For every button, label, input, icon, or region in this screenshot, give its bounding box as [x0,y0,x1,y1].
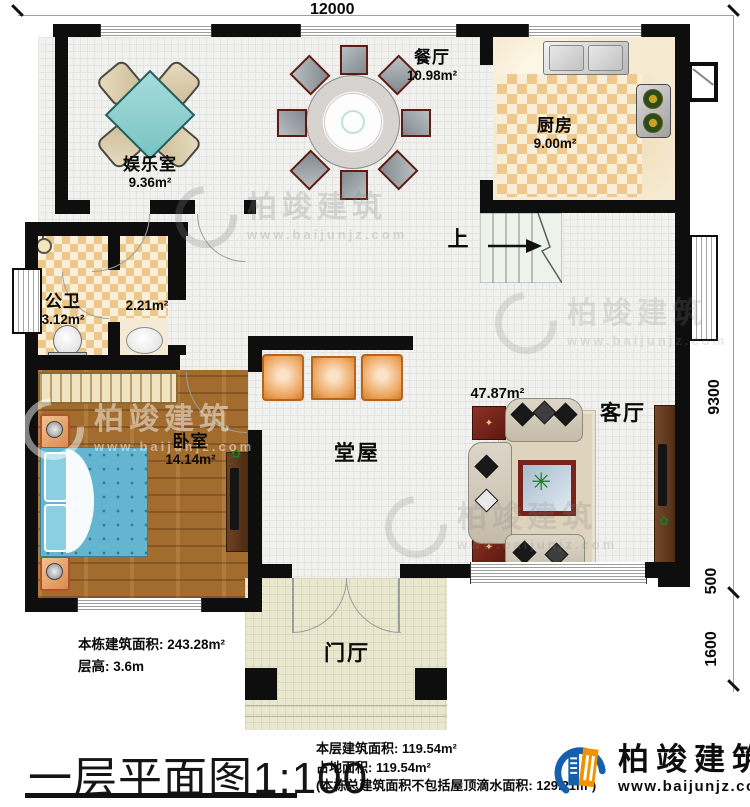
chair [340,170,368,200]
title-underline [25,793,297,798]
pillow [44,452,68,502]
wall [253,564,292,578]
living-area-value: 47.87m² [455,386,540,403]
wardrobe [38,372,178,404]
plant-icon: ✳ [531,468,551,497]
lamp [46,563,63,580]
plant-icon: ✿ [659,514,669,528]
building-area-note: 本栋建筑面积: 243.28m² [78,634,225,656]
room-label-bedroom: 卧室 14.14m² [148,432,233,467]
stairs-up-label: 上 [444,228,474,252]
tv [658,444,667,506]
wall [400,564,470,578]
brand-name: 柏竣建筑 [618,744,750,775]
room-label-bathroom: 公卫 3.12m² [28,292,98,327]
dimension-line-top [18,15,733,16]
pillow [44,504,68,552]
window [470,562,647,584]
dimension-right-lower: 1600 [703,627,721,671]
burner [643,89,663,109]
wall [248,430,262,612]
armchair [361,354,403,401]
shower-head-icon [36,238,52,254]
logo-icon [548,740,610,798]
sink-basin [549,45,584,71]
tv [230,468,239,530]
window [528,24,642,37]
left-notes: 本栋建筑面积: 243.28m² 层高: 3.6m [78,634,225,678]
wall [645,562,690,578]
door-leaf [398,578,400,632]
wall [480,37,493,65]
door-leaf [292,578,294,632]
wall [480,180,493,202]
floor-plan: ✿ ✦ ✦ ✳ ✿ [0,0,750,807]
wall [675,24,690,580]
window [77,598,202,612]
wall [25,355,180,370]
dimension-right-upper: 9300 [706,372,724,422]
lamp [46,421,63,438]
room-label-kitchen: 厨房 9.00m² [515,116,595,151]
wall [244,200,256,214]
company-logo: 柏竣建筑 www.baijunjz.com [548,740,750,798]
wall [168,236,186,300]
room-label-dining: 餐厅 10.98m² [392,48,472,83]
side-table [311,356,356,400]
room-label-living: 客厅 [588,402,658,426]
room-label-washroom: 2.21m² [112,298,182,314]
stairs [480,213,562,283]
wall [55,24,68,214]
foyer-step-line [245,716,447,717]
room-label-foyer: 门厅 [302,642,392,666]
chair [340,45,368,75]
window [100,24,212,37]
floor-height-note: 层高: 3.6m [78,656,225,678]
dimension-right-middle: 500 [703,561,721,601]
wall [658,578,690,587]
porch-column [415,668,447,700]
brand-url: www.baijunjz.com [618,778,750,795]
dimension-top-value: 12000 [310,1,355,19]
porch-column [245,668,277,700]
wall [168,345,186,355]
room-label-entertainment: 娱乐室 9.36m² [105,155,195,190]
dining-table-center [341,110,365,134]
wall [480,200,690,213]
wall [248,336,413,350]
wall [25,370,38,612]
room-label-hall: 堂屋 [312,442,402,466]
armchair [262,354,304,401]
window [690,235,718,341]
burner [643,113,663,133]
window [300,24,457,37]
chair [401,109,431,137]
foyer-step-line [245,705,447,706]
wall [55,200,90,214]
wall [108,322,120,355]
chair [277,109,307,137]
sink-basin [588,45,623,71]
washbasin [126,327,163,354]
end-table: ✦ [472,406,506,440]
wall [150,200,195,214]
